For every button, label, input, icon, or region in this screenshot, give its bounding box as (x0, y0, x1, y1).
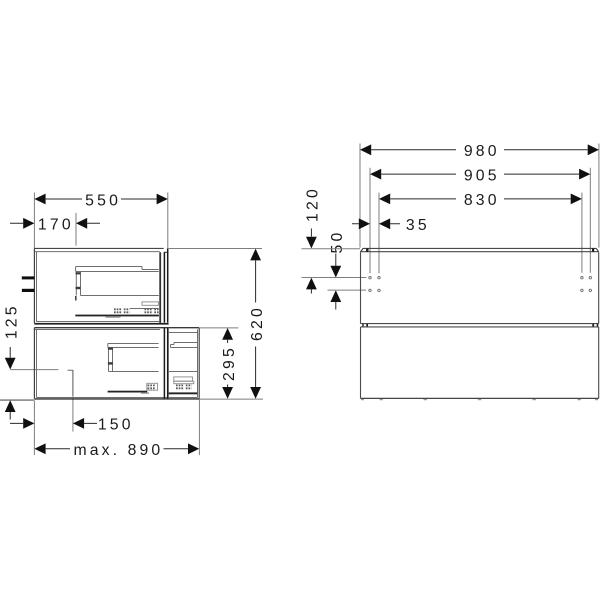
svg-text:295: 295 (221, 345, 238, 381)
svg-text:125: 125 (3, 303, 20, 339)
svg-text:550: 550 (85, 192, 121, 209)
svg-text:980: 980 (464, 143, 500, 160)
svg-text:max. 890: max. 890 (74, 442, 164, 459)
svg-text:150: 150 (98, 417, 134, 434)
svg-text:905: 905 (464, 167, 500, 184)
svg-text:620: 620 (249, 305, 266, 341)
svg-text:120: 120 (305, 186, 322, 222)
svg-text:35: 35 (406, 217, 430, 234)
svg-text:50: 50 (329, 230, 346, 254)
svg-text:830: 830 (464, 192, 500, 209)
svg-text:170: 170 (38, 217, 74, 234)
